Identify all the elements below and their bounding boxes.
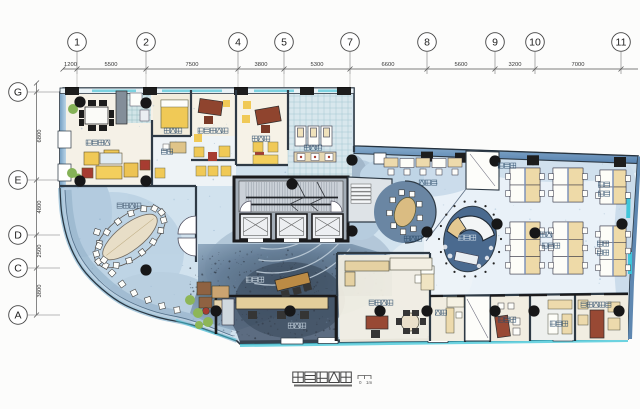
svg-text:C: C xyxy=(14,263,22,275)
svg-text:5500: 5500 xyxy=(105,62,118,68)
svg-text:7000: 7000 xyxy=(572,62,585,68)
svg-text:4800: 4800 xyxy=(37,201,43,214)
svg-text:G: G xyxy=(14,87,22,99)
svg-text:7: 7 xyxy=(347,37,353,49)
svg-text:11: 11 xyxy=(616,37,627,49)
svg-text:8: 8 xyxy=(424,37,430,49)
svg-text:A: A xyxy=(14,310,21,322)
svg-text:9: 9 xyxy=(492,37,498,49)
svg-text:5300: 5300 xyxy=(311,62,324,68)
svg-text:3800: 3800 xyxy=(255,62,268,68)
svg-text:6600: 6600 xyxy=(382,62,395,68)
svg-text:D: D xyxy=(14,230,22,242)
svg-text:2500: 2500 xyxy=(37,245,43,258)
svg-text:1m: 1m xyxy=(366,380,373,385)
svg-text:1: 1 xyxy=(74,37,80,49)
svg-text:3200: 3200 xyxy=(509,62,522,68)
svg-text:1200: 1200 xyxy=(64,62,77,68)
svg-text:6800: 6800 xyxy=(37,130,43,143)
svg-text:10: 10 xyxy=(529,37,541,49)
svg-text:3800: 3800 xyxy=(37,285,43,298)
svg-text:4: 4 xyxy=(235,37,241,49)
svg-text:5: 5 xyxy=(281,37,287,49)
svg-text:E: E xyxy=(14,175,21,187)
svg-text:7500: 7500 xyxy=(186,62,199,68)
svg-text:2: 2 xyxy=(143,37,149,49)
svg-text:5600: 5600 xyxy=(455,62,468,68)
